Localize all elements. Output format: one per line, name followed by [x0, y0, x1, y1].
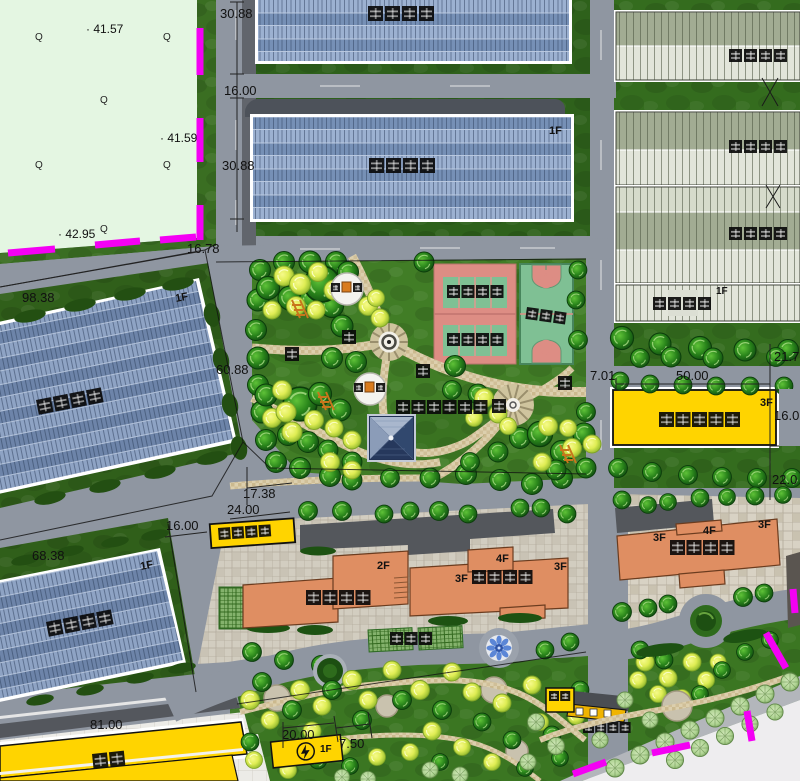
svg-text:Q: Q	[100, 95, 108, 106]
svg-text:16.00: 16.00	[224, 83, 257, 98]
svg-text:3F: 3F	[758, 519, 771, 531]
svg-text:2F: 2F	[377, 560, 390, 572]
svg-text:50.00: 50.00	[676, 368, 709, 383]
svg-text:60.88: 60.88	[216, 362, 249, 377]
svg-text:30.88: 30.88	[222, 158, 255, 173]
svg-text:Q: Q	[35, 32, 43, 43]
svg-text:3F: 3F	[554, 561, 567, 573]
svg-text:1F: 1F	[716, 286, 728, 297]
svg-text:68.38: 68.38	[32, 548, 65, 563]
svg-text:16.00: 16.00	[166, 518, 199, 533]
svg-text:7.50: 7.50	[339, 736, 364, 751]
svg-text:16.78: 16.78	[187, 241, 220, 256]
svg-text:22.0: 22.0	[772, 472, 797, 487]
svg-text:20.00: 20.00	[282, 727, 315, 742]
svg-text:81.00: 81.00	[90, 717, 123, 732]
svg-text:Q: Q	[163, 160, 171, 171]
svg-text:4F: 4F	[703, 525, 716, 537]
svg-text:· 42.95: · 42.95	[58, 227, 96, 241]
svg-text:24.00: 24.00	[227, 502, 260, 517]
svg-text:7.01: 7.01	[590, 368, 615, 383]
svg-text:4F: 4F	[496, 553, 509, 565]
svg-text:· 41.59: · 41.59	[160, 131, 198, 145]
svg-text:98.38: 98.38	[22, 290, 55, 305]
svg-text:3F: 3F	[760, 397, 773, 409]
svg-text:· 41.57: · 41.57	[86, 22, 124, 36]
svg-text:Q: Q	[163, 32, 171, 43]
svg-text:16.0: 16.0	[774, 408, 799, 423]
svg-text:1F: 1F	[139, 559, 154, 573]
svg-text:Q: Q	[100, 224, 108, 235]
svg-text:30.88: 30.88	[220, 6, 253, 21]
svg-text:1F: 1F	[549, 125, 562, 137]
svg-text:3F: 3F	[455, 573, 468, 585]
svg-text:21.7: 21.7	[774, 349, 799, 364]
svg-text:Q: Q	[35, 160, 43, 171]
svg-text:1F: 1F	[174, 291, 189, 305]
svg-text:3F: 3F	[653, 532, 666, 544]
svg-text:1F: 1F	[320, 744, 332, 755]
